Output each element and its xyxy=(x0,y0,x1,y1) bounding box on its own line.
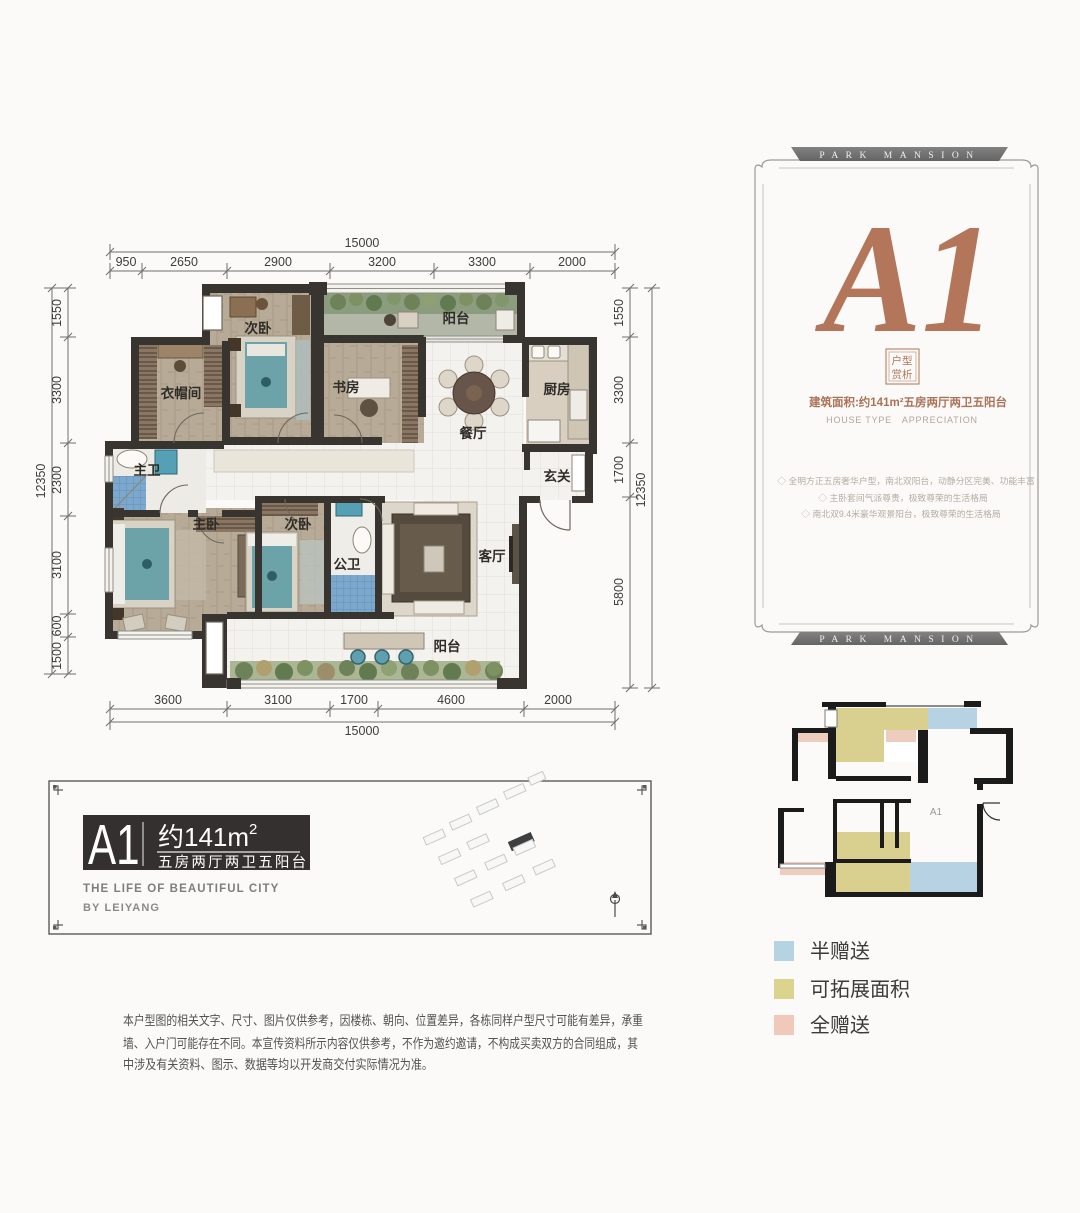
svg-text:950: 950 xyxy=(116,255,137,269)
svg-text:1500: 1500 xyxy=(50,642,64,670)
svg-text:2900: 2900 xyxy=(264,255,292,269)
svg-text:次卧: 次卧 xyxy=(245,320,272,336)
svg-text:赏析: 赏析 xyxy=(892,368,913,381)
svg-text:◇ 全明方正五房奢华户型，南北双阳台，动静分区完美、功能丰富: ◇ 全明方正五房奢华户型，南北双阳台，动静分区完美、功能丰富 xyxy=(777,475,1035,486)
svg-text:5800: 5800 xyxy=(612,578,626,606)
svg-text:主卧: 主卧 xyxy=(193,516,220,532)
svg-text:2000: 2000 xyxy=(558,255,586,269)
svg-text:餐厅: 餐厅 xyxy=(459,425,487,441)
svg-text:2650: 2650 xyxy=(170,255,198,269)
svg-text:1550: 1550 xyxy=(50,299,64,327)
svg-text:PARK MANSION: PARK MANSION xyxy=(819,151,980,161)
svg-text:墙、入户门可能存在不同。本宣传资料所示内容仅供参考，不作为邀: 墙、入户门可能存在不同。本宣传资料所示内容仅供参考，不作为邀约邀请，不构成买卖双… xyxy=(123,1036,638,1051)
svg-text:1700: 1700 xyxy=(340,693,368,707)
svg-text:3300: 3300 xyxy=(468,255,496,269)
svg-text:A1: A1 xyxy=(930,807,943,818)
svg-text:次卧: 次卧 xyxy=(285,516,312,532)
svg-text:1550: 1550 xyxy=(612,299,626,327)
svg-text:600: 600 xyxy=(50,616,64,637)
svg-text:半赠送: 半赠送 xyxy=(810,940,870,963)
svg-text:阳台: 阳台 xyxy=(434,638,461,654)
svg-text:4600: 4600 xyxy=(437,693,465,707)
svg-text:客厅: 客厅 xyxy=(478,548,506,564)
svg-text:A1: A1 xyxy=(88,813,140,877)
svg-text:厨房: 厨房 xyxy=(544,381,571,397)
svg-text:玄关: 玄关 xyxy=(544,468,572,484)
svg-text:12350: 12350 xyxy=(34,464,48,499)
svg-text:中涉及有关资料、图示、数据等均以开发商交付实际情况为准。: 中涉及有关资料、图示、数据等均以开发商交付实际情况为准。 xyxy=(123,1057,433,1072)
svg-text:书房: 书房 xyxy=(333,379,360,395)
svg-text:五房两厅两卫五阳台: 五房两厅两卫五阳台 xyxy=(158,854,308,871)
svg-text:公卫: 公卫 xyxy=(334,557,361,572)
svg-text:约141m2: 约141m2 xyxy=(158,821,257,852)
svg-text:15000: 15000 xyxy=(345,724,380,738)
svg-text:◇ 南北双9.4米豪华观景阳台，极致尊荣的生活格局: ◇ 南北双9.4米豪华观景阳台，极致尊荣的生活格局 xyxy=(801,508,1001,519)
svg-text:HOUSE TYPE APPRECIATION: HOUSE TYPE APPRECIATION xyxy=(826,415,978,425)
svg-text:衣帽间: 衣帽间 xyxy=(161,385,202,401)
svg-text:3200: 3200 xyxy=(368,255,396,269)
svg-text:THE LIFE OF BEAUTIFUL CITY: THE LIFE OF BEAUTIFUL CITY xyxy=(83,883,279,895)
svg-text:可拓展面积: 可拓展面积 xyxy=(810,978,910,1001)
svg-text:全赠送: 全赠送 xyxy=(810,1014,870,1037)
svg-text:PARK MANSION: PARK MANSION xyxy=(819,635,980,645)
svg-text:A1: A1 xyxy=(815,192,996,365)
svg-text:户型: 户型 xyxy=(892,354,913,367)
svg-text:15000: 15000 xyxy=(345,236,380,250)
svg-text:3100: 3100 xyxy=(264,693,292,707)
svg-text:◇ 主卧套间气派尊贵，极致尊荣的生活格局: ◇ 主卧套间气派尊贵，极致尊荣的生活格局 xyxy=(818,492,988,503)
svg-text:BY LEIYANG: BY LEIYANG xyxy=(83,902,160,914)
svg-text:3300: 3300 xyxy=(612,376,626,404)
svg-text:本户型图的相关文字、尺寸、图片仅供参考，因楼栋、朝向、位置差: 本户型图的相关文字、尺寸、图片仅供参考，因楼栋、朝向、位置差异，各栋同样户型尺寸… xyxy=(123,1013,643,1028)
svg-text:2000: 2000 xyxy=(544,693,572,707)
svg-text:1700: 1700 xyxy=(612,456,626,484)
svg-text:3100: 3100 xyxy=(50,551,64,579)
svg-text:3600: 3600 xyxy=(154,693,182,707)
svg-text:阳台: 阳台 xyxy=(443,310,470,326)
svg-text:3300: 3300 xyxy=(50,376,64,404)
svg-text:主卫: 主卫 xyxy=(134,462,161,478)
svg-text:2300: 2300 xyxy=(50,466,64,494)
svg-text:12350: 12350 xyxy=(634,473,648,508)
svg-text:建筑面积:约141m²五房两厅两卫五阳台: 建筑面积:约141m²五房两厅两卫五阳台 xyxy=(809,395,1007,409)
